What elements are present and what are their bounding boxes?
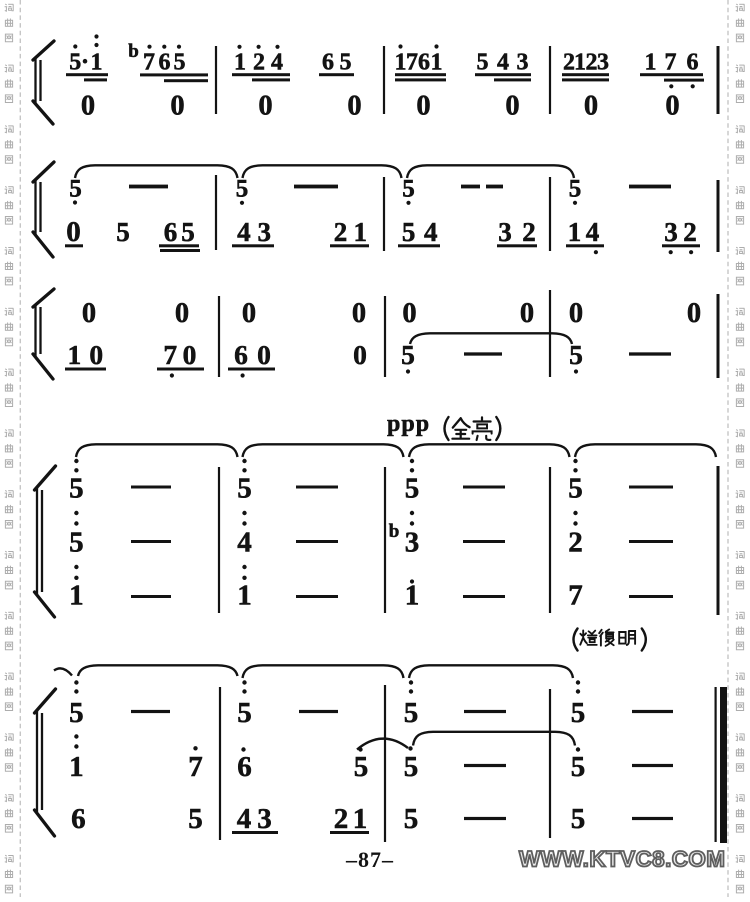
svg-text:5: 5 xyxy=(237,473,252,505)
svg-text:2: 2 xyxy=(334,803,349,835)
svg-text:0: 0 xyxy=(66,216,81,248)
svg-text:1: 1 xyxy=(568,217,582,247)
svg-text:4: 4 xyxy=(237,803,252,835)
svg-text:3: 3 xyxy=(517,50,529,76)
svg-text:b: b xyxy=(128,41,139,62)
svg-text:0: 0 xyxy=(569,298,583,329)
svg-text:1: 1 xyxy=(91,50,103,76)
svg-text:5: 5 xyxy=(401,339,415,370)
svg-text:1: 1 xyxy=(395,50,407,76)
svg-text:3: 3 xyxy=(664,217,678,247)
svg-text:2: 2 xyxy=(334,217,348,247)
svg-text:3: 3 xyxy=(258,217,272,247)
svg-text:7: 7 xyxy=(568,580,583,612)
svg-text:4: 4 xyxy=(237,526,252,558)
svg-text:5: 5 xyxy=(405,473,420,505)
svg-text:4: 4 xyxy=(237,217,251,247)
svg-text:5: 5 xyxy=(402,176,415,203)
svg-text:7: 7 xyxy=(163,339,177,370)
svg-text:6: 6 xyxy=(322,50,334,76)
svg-text:0: 0 xyxy=(584,90,598,121)
svg-text:0: 0 xyxy=(687,298,701,329)
svg-text:5: 5 xyxy=(236,176,249,203)
svg-text:5: 5 xyxy=(404,697,419,729)
svg-text:6: 6 xyxy=(237,751,252,783)
svg-text:5: 5 xyxy=(569,339,583,370)
svg-text:2: 2 xyxy=(586,50,598,76)
svg-text:5: 5 xyxy=(571,697,586,729)
svg-text:1: 1 xyxy=(431,50,443,76)
svg-text:5: 5 xyxy=(571,803,586,835)
svg-text:4: 4 xyxy=(497,50,509,76)
svg-text:5: 5 xyxy=(354,751,369,783)
svg-text:0: 0 xyxy=(257,339,271,370)
svg-text:7: 7 xyxy=(406,50,418,76)
svg-text:b: b xyxy=(389,521,400,542)
svg-text:7: 7 xyxy=(665,50,677,76)
svg-text:7: 7 xyxy=(188,751,203,783)
svg-text:6: 6 xyxy=(71,803,86,835)
svg-text:5: 5 xyxy=(69,697,84,729)
svg-text:2: 2 xyxy=(522,217,536,247)
svg-text:6: 6 xyxy=(418,50,430,76)
svg-text:0: 0 xyxy=(82,298,96,329)
svg-text:5: 5 xyxy=(69,176,82,203)
svg-text:6: 6 xyxy=(234,339,248,370)
svg-text:5: 5 xyxy=(237,697,252,729)
svg-text:1: 1 xyxy=(69,751,84,783)
svg-text:4: 4 xyxy=(586,217,600,247)
svg-text:1: 1 xyxy=(234,50,246,76)
svg-text:1: 1 xyxy=(574,50,586,76)
svg-text:1: 1 xyxy=(69,580,84,612)
svg-text:ppp: ppp xyxy=(387,411,430,437)
svg-text:0: 0 xyxy=(665,90,679,121)
svg-text:1: 1 xyxy=(645,50,657,76)
svg-text:5: 5 xyxy=(69,473,84,505)
svg-text:5: 5 xyxy=(116,217,130,247)
svg-text:1: 1 xyxy=(405,580,420,612)
svg-text:3: 3 xyxy=(498,217,512,247)
svg-text:3: 3 xyxy=(257,803,272,835)
svg-text:0: 0 xyxy=(170,90,184,121)
svg-text:0: 0 xyxy=(242,298,256,329)
svg-text:4: 4 xyxy=(271,50,283,76)
svg-text:2: 2 xyxy=(253,50,265,76)
svg-text:3: 3 xyxy=(405,526,420,558)
svg-text:5: 5 xyxy=(340,50,352,76)
svg-text:1: 1 xyxy=(68,339,82,370)
svg-text:0: 0 xyxy=(175,298,189,329)
svg-text:5: 5 xyxy=(404,803,419,835)
svg-text:–87–: –87– xyxy=(345,847,394,872)
svg-text:0: 0 xyxy=(347,90,361,121)
svg-text:5: 5 xyxy=(69,50,81,76)
svg-text:2: 2 xyxy=(683,217,697,247)
svg-text:1: 1 xyxy=(354,217,368,247)
svg-text:4: 4 xyxy=(424,217,438,247)
svg-text:1: 1 xyxy=(353,803,368,835)
svg-text:5: 5 xyxy=(174,50,186,76)
svg-text:WWW.KTVC8.COM: WWW.KTVC8.COM xyxy=(519,847,725,872)
svg-text:6: 6 xyxy=(159,50,171,76)
svg-text:5: 5 xyxy=(568,473,583,505)
svg-text:0: 0 xyxy=(258,90,272,121)
svg-text:5: 5 xyxy=(569,176,582,203)
svg-text:5: 5 xyxy=(188,803,203,835)
svg-text:0: 0 xyxy=(353,339,367,370)
svg-text:5: 5 xyxy=(571,751,586,783)
svg-text:5: 5 xyxy=(69,526,84,558)
svg-text:0: 0 xyxy=(352,298,366,329)
svg-text:5: 5 xyxy=(402,217,416,247)
svg-text:0: 0 xyxy=(416,90,430,121)
svg-text:0: 0 xyxy=(183,339,197,370)
svg-text:0: 0 xyxy=(505,90,519,121)
svg-text:6: 6 xyxy=(687,50,699,76)
svg-text:3: 3 xyxy=(597,50,609,76)
svg-text:6: 6 xyxy=(164,217,178,247)
svg-text:0: 0 xyxy=(89,339,103,370)
svg-text:5: 5 xyxy=(477,50,489,76)
svg-text:0: 0 xyxy=(520,298,534,329)
svg-text:0: 0 xyxy=(402,298,416,329)
svg-text:5: 5 xyxy=(181,217,195,247)
svg-text:0: 0 xyxy=(81,90,95,121)
svg-text:1: 1 xyxy=(237,580,252,612)
svg-text:2: 2 xyxy=(568,526,583,558)
svg-text:5: 5 xyxy=(404,751,419,783)
svg-text:7: 7 xyxy=(143,50,155,76)
